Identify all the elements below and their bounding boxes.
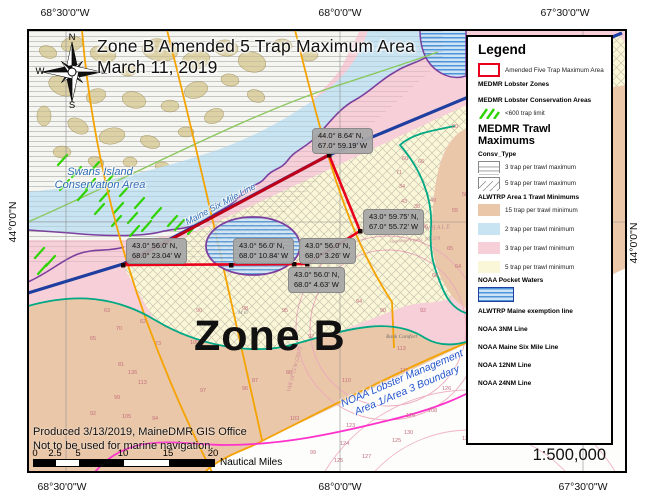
compass-s-label: S [69, 100, 75, 111]
legend-item-label: 3 trap per trawl minimum [505, 245, 574, 252]
svg-text:103: 103 [290, 416, 299, 422]
svg-text:110: 110 [342, 378, 351, 384]
callout-line: 68.0° 10.84' W [239, 251, 288, 261]
legend-heading-24nm: NOAA 24NM Line [478, 380, 607, 387]
swans-island-line2: Conservation Area [35, 179, 165, 192]
legend-item-3-trap-min: 3 trap per trawl minimum [478, 242, 607, 254]
yellow-swatch [478, 261, 500, 273]
pocket-waters-swatch [478, 287, 514, 302]
svg-text:136: 136 [128, 370, 137, 376]
callout-west-vertex: 43.0° 56.0' N, 68.0° 23.04' W [126, 238, 187, 264]
hlines-swatch [478, 161, 500, 173]
red-box-swatch [478, 63, 500, 77]
callout-line: 68.0° 4.63' W [294, 280, 339, 290]
zone-b-label: Zone B [194, 312, 346, 361]
svg-text:105: 105 [122, 414, 131, 420]
callout-line: 43.0° 56.0' N, [239, 241, 288, 251]
legend-item-label: 2 trap per trawl minimum [505, 226, 574, 233]
scale-bar: 0 2.5 5 10 15 20 Nautical Miles [33, 448, 263, 470]
svg-text:90: 90 [380, 308, 386, 314]
svg-text:108: 108 [428, 408, 437, 414]
legend-heading-trawl-maximums: MEDMR Trawl Maximums [478, 123, 607, 147]
svg-text:113: 113 [138, 380, 147, 386]
diag-hatch-swatch [478, 177, 500, 189]
svg-text:97: 97 [200, 388, 206, 394]
svg-text:130: 130 [404, 430, 413, 436]
legend-heading-12nm: NOAA 12NM Line [478, 362, 607, 369]
svg-text:34: 34 [399, 184, 405, 190]
scale-tick: 10 [118, 448, 129, 459]
legend-item-5-trap-max: 5 trap per trawl maximum [478, 177, 607, 189]
legend-item-label: Amended Five Trap Maximum Area [505, 67, 604, 74]
bottom-coord-67-30: 67°30'0"W [538, 481, 628, 493]
compass-w-label: W [36, 66, 45, 77]
callout-line: 68.0° 3.26' W [305, 251, 350, 261]
svg-text:60: 60 [452, 124, 458, 130]
svg-text:126: 126 [442, 386, 451, 392]
top-coord-68-00: 68°0'0"W [295, 7, 385, 19]
callout-southeast-vertex: 43.0° 56.0' N, 68.0° 3.26' W [299, 238, 356, 264]
scale-tick: 5 [75, 448, 80, 459]
svg-text:123: 123 [346, 423, 355, 429]
svg-text:92: 92 [420, 308, 426, 314]
legend-item-amended-area: Amended Five Trap Maximum Area [478, 63, 607, 77]
tan-swatch [478, 204, 500, 216]
svg-text:60: 60 [402, 156, 408, 162]
svg-text:70: 70 [116, 326, 122, 332]
swans-island-line1: Swans Island [35, 166, 165, 179]
map-title: Zone B Amended 5 Trap Maximum Area [97, 36, 415, 57]
svg-text:68: 68 [432, 273, 438, 279]
legend-heading-conservation-areas: MEDMR Lobster Conservation Areas [478, 97, 607, 104]
legend-item-15-trap-min: 15 trap per trawl minimum [478, 204, 607, 216]
svg-text:124: 124 [340, 441, 349, 447]
scale-tick: 2.5 [48, 448, 61, 459]
legend-heading-3nm: NOAA 3NM Line [478, 326, 607, 333]
callout-line: 43.0° 56.0' N, [132, 241, 181, 251]
svg-text:73: 73 [155, 341, 161, 347]
legend-item-600-trap: <600 trap limit [478, 107, 607, 119]
legend-item-label: 5 trap per trawl maximum [505, 180, 576, 187]
callout-line: 43.0° 56.0' N, [305, 241, 350, 251]
scale-tick: 20 [208, 448, 219, 459]
legend-item-label: 5 trap per trawl minimum [505, 264, 574, 271]
legend-title: Legend [478, 42, 607, 57]
top-coord-68-30: 68°30'0"W [20, 7, 110, 19]
scale-tick: 0 [32, 448, 37, 459]
svg-text:125: 125 [334, 458, 343, 464]
green-hatch-swatch [478, 107, 500, 119]
svg-text:66: 66 [418, 159, 424, 165]
callout-north-vertex: 44.0° 8.64' N, 67.0° 59.19' W [312, 128, 373, 154]
legend-item-3-trap-max: 3 trap per trawl maximum [478, 161, 607, 173]
legend-heading-alwtrp: ALWTRP Area 1 Trawl Minimums [478, 194, 607, 201]
produced-line: Produced 3/13/2019, MaineDMR GIS Office [33, 426, 247, 440]
svg-text:55: 55 [452, 208, 458, 214]
pink-swatch [478, 242, 500, 254]
legend-item-5-trap-min: 5 trap per trawl minimum [478, 261, 607, 273]
svg-text:127: 127 [362, 454, 371, 460]
scale-bar-blocks [33, 459, 215, 467]
legend-heading-six-mile: NOAA Maine Six Mile Line [478, 344, 607, 351]
legend-heading-exemption-line: ALWTRP Maine exemption line [478, 308, 607, 315]
svg-text:99: 99 [114, 395, 120, 401]
right-coord-44n: 44°0'0"N [628, 213, 640, 273]
legend-heading-pocket-waters: NOAA Pocket Waters [478, 277, 607, 284]
svg-text:96: 96 [242, 386, 248, 392]
svg-text:125: 125 [392, 438, 401, 444]
svg-text:87: 87 [252, 378, 258, 384]
bank-comfort-label: Bank Comfort [386, 333, 417, 340]
bottom-coord-68-00: 68°0'0"W [295, 481, 385, 493]
svg-text:94: 94 [152, 416, 158, 422]
callout-line: 68.0° 23.04' W [132, 251, 181, 261]
legend-item-pocket-waters [478, 287, 607, 302]
svg-text:124: 124 [406, 413, 415, 419]
svg-text:63: 63 [104, 308, 110, 314]
scale-unit-label: Nautical Miles [220, 457, 282, 468]
svg-text:94: 94 [356, 299, 362, 305]
map-subtitle-date: March 11, 2019 [97, 57, 217, 78]
callout-east-vertex: 43.0° 59.75' N, 67.0° 55.72' W [363, 209, 424, 235]
blue-swatch [478, 223, 500, 235]
svg-text:65: 65 [447, 246, 453, 252]
scale-ratio-label: 1:500,000 [500, 446, 606, 465]
swans-island-label: Swans Island Conservation Area [35, 166, 165, 192]
bottom-coord-68-30: 68°30'0"W [17, 481, 107, 493]
svg-text:113: 113 [397, 346, 406, 352]
callout-line: 43.0° 59.75' N, [369, 212, 418, 222]
callout-line: 67.0° 59.19' W [318, 141, 367, 151]
legend-item-2-trap-min: 2 trap per trawl minimum [478, 223, 607, 235]
svg-text:43: 43 [401, 199, 407, 205]
svg-text:62: 62 [140, 319, 146, 325]
scale-tick: 15 [163, 448, 174, 459]
legend-item-label: 15 trap per trawl minimum [505, 207, 578, 214]
callout-line: 67.0° 55.72' W [369, 222, 418, 232]
legend-panel: Legend Amended Five Trap Maximum Area ME… [466, 35, 613, 445]
callout-line: 43.0° 56.0' N, [294, 270, 339, 280]
map-document: 6066713443384046555865686463706573628113… [0, 0, 650, 502]
svg-text:64: 64 [455, 264, 461, 270]
compass-n-label: N [69, 32, 76, 43]
svg-text:92: 92 [90, 411, 96, 417]
top-coord-67-30: 67°30'0"W [520, 7, 610, 19]
legend-heading-lobster-zones: MEDMR Lobster Zones [478, 81, 607, 88]
callout-line: 44.0° 8.64' N, [318, 131, 367, 141]
svg-text:40: 40 [430, 198, 436, 204]
legend-heading-consv-type: Consv_Type [478, 151, 607, 158]
callout-mid-point: 43.0° 56.0' N, 68.0° 10.84' W [233, 238, 294, 264]
svg-text:65: 65 [90, 336, 96, 342]
legend-item-label: 3 trap per trawl maximum [505, 164, 576, 171]
legend-item-label: <600 trap limit [505, 110, 545, 117]
left-coord-44n: 44°0'0"N [7, 192, 19, 252]
svg-text:99: 99 [310, 450, 316, 456]
svg-text:81: 81 [118, 362, 124, 368]
svg-text:71: 71 [396, 170, 402, 176]
callout-south-point: 43.0° 56.0' N, 68.0° 4.63' W [288, 267, 345, 293]
